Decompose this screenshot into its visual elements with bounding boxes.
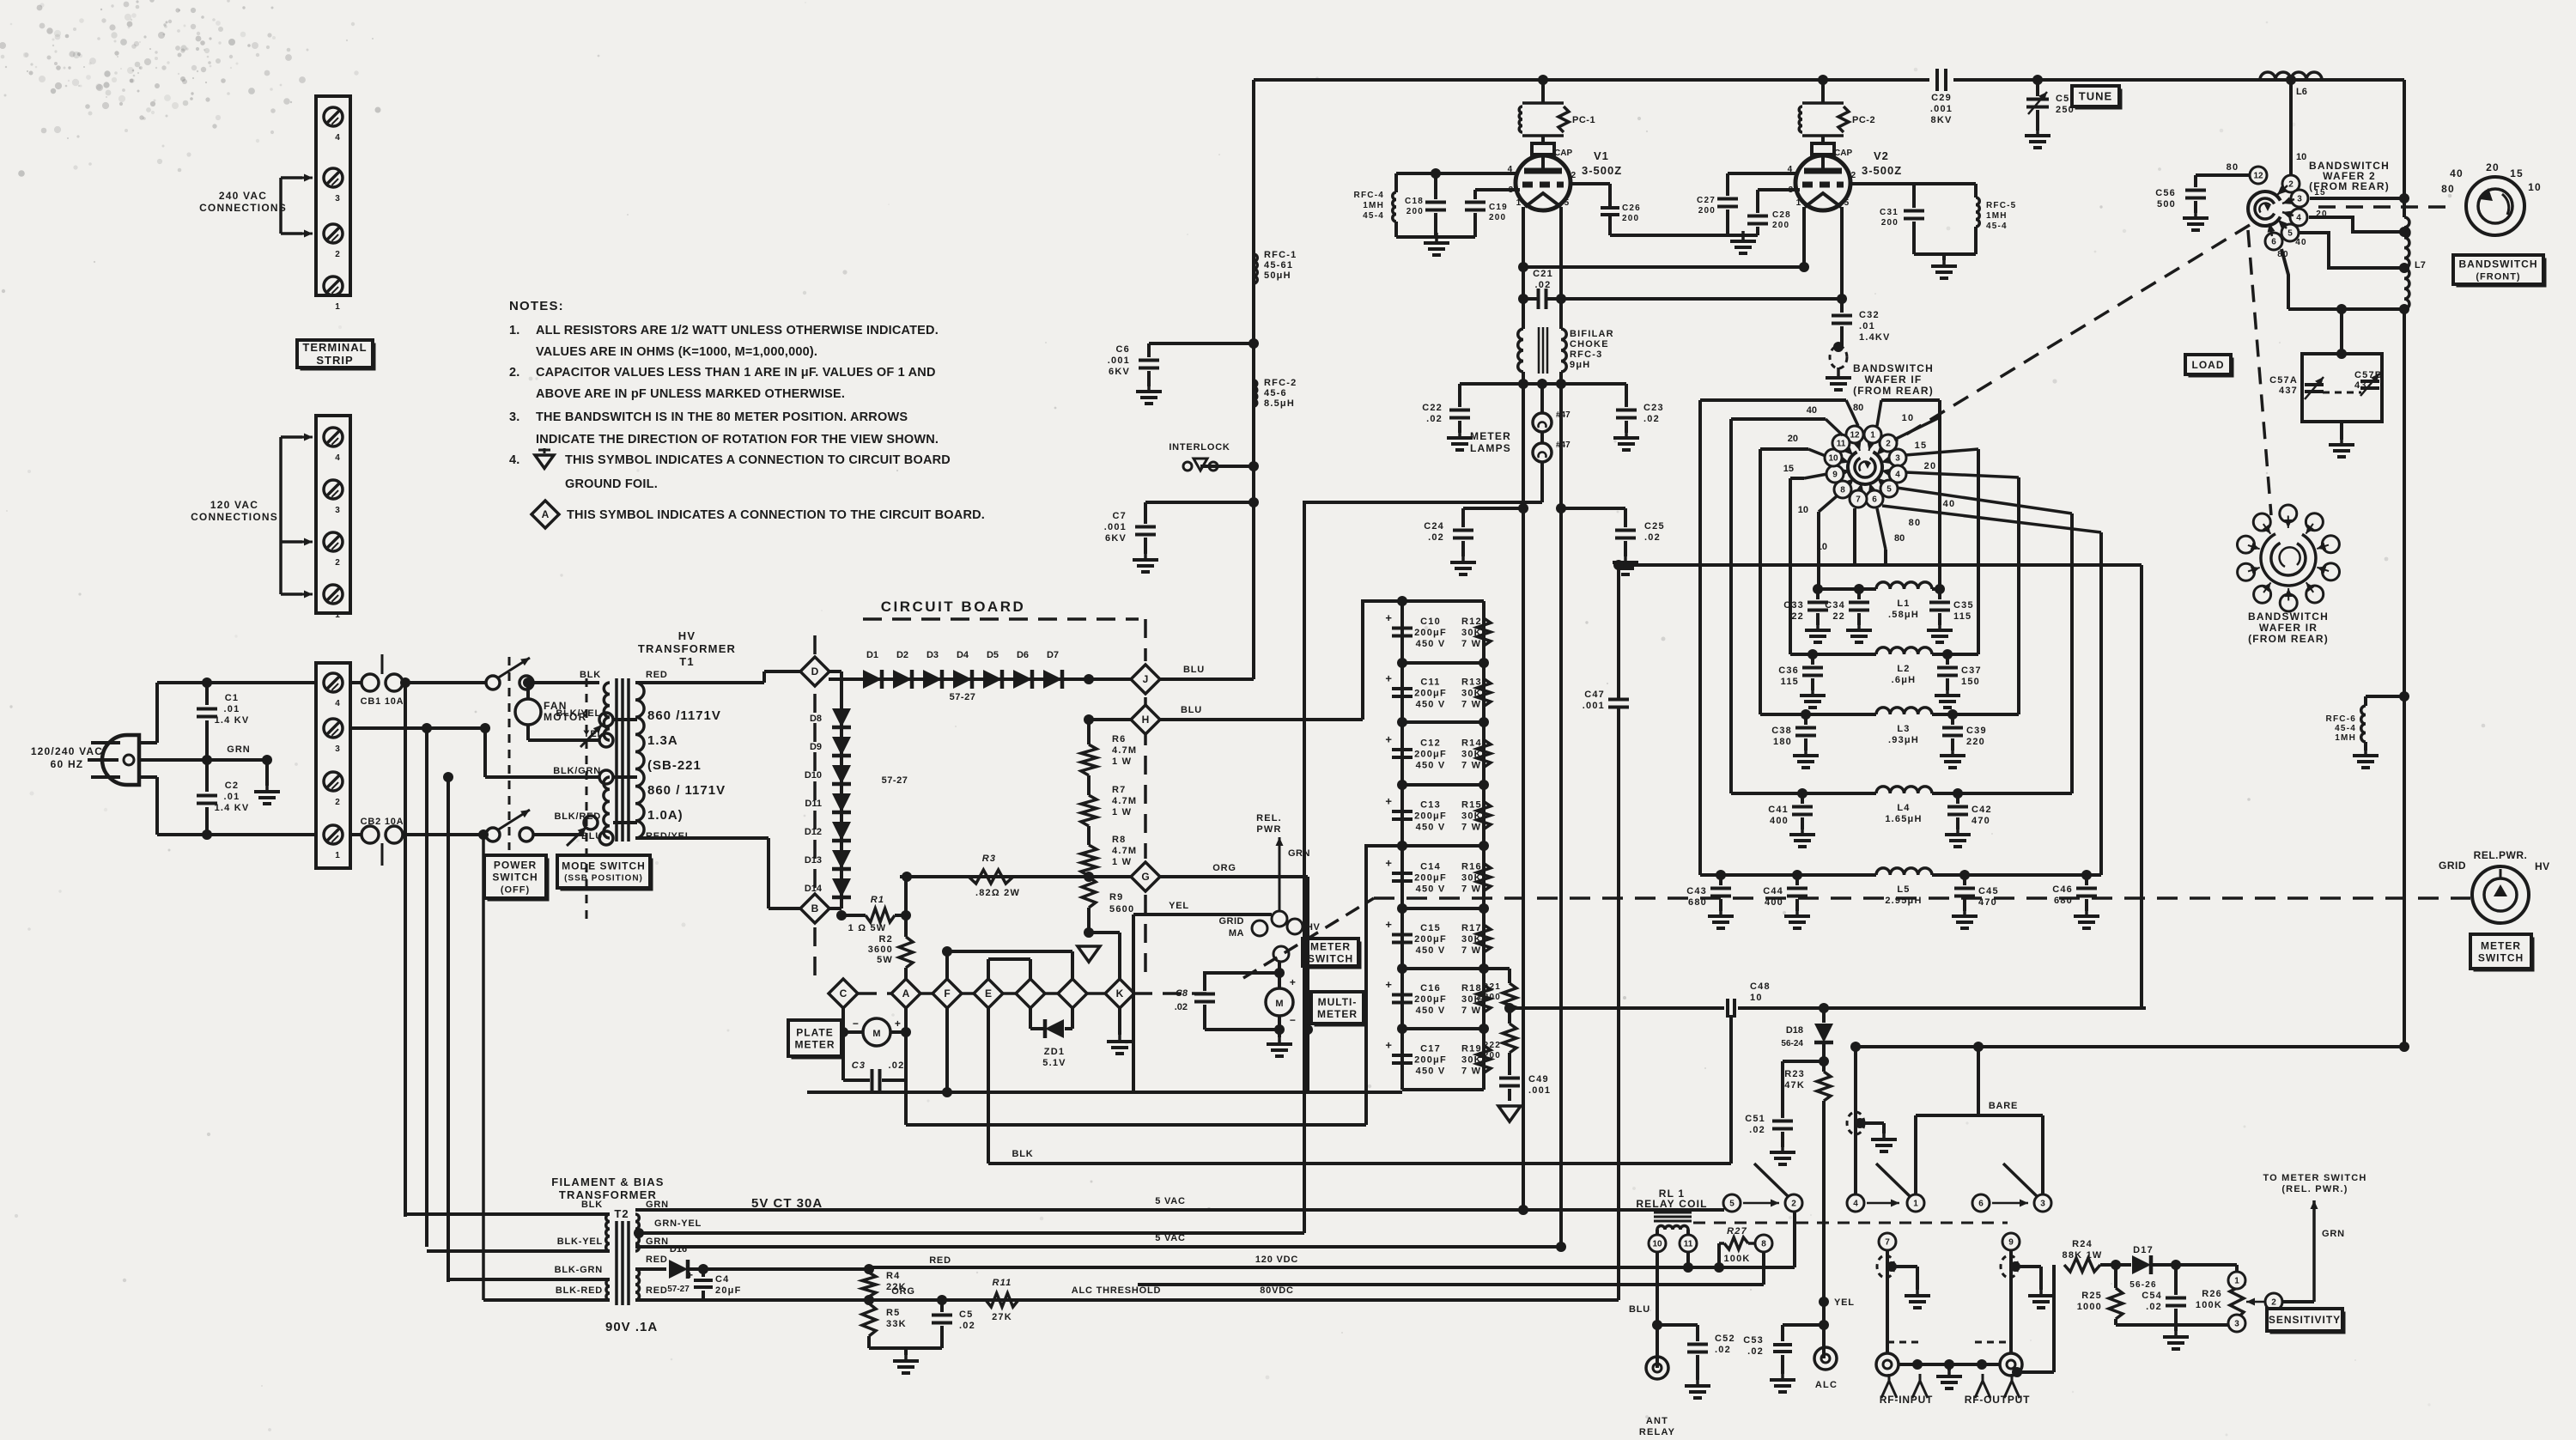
svg-text:80: 80 bbox=[1853, 403, 1863, 413]
svg-text:C29: C29 bbox=[1931, 93, 1952, 103]
svg-text:D11: D11 bbox=[805, 799, 822, 809]
svg-text:7: 7 bbox=[1885, 1238, 1890, 1248]
svg-text:450 V: 450 V bbox=[1416, 823, 1446, 833]
svg-text:R9: R9 bbox=[1109, 892, 1123, 902]
svg-text:BLK/RED: BLK/RED bbox=[555, 811, 602, 822]
svg-text:22K: 22K bbox=[886, 1282, 907, 1292]
svg-text:METER: METER bbox=[1317, 1008, 1358, 1020]
svg-text:R14: R14 bbox=[1461, 738, 1482, 749]
svg-text:.02: .02 bbox=[1644, 532, 1661, 543]
svg-text:C16: C16 bbox=[1420, 983, 1441, 993]
svg-text:C52: C52 bbox=[1715, 1334, 1735, 1344]
svg-text:200: 200 bbox=[1881, 218, 1899, 228]
svg-text:L7: L7 bbox=[2415, 260, 2426, 270]
svg-text:C17: C17 bbox=[1420, 1044, 1441, 1054]
svg-text:.001: .001 bbox=[1583, 701, 1605, 711]
svg-text:.82Ω 2W: .82Ω 2W bbox=[975, 888, 1020, 898]
svg-text:1MH: 1MH bbox=[2335, 733, 2356, 743]
svg-text:LAMPS: LAMPS bbox=[1470, 442, 1511, 454]
svg-text:1.4 KV: 1.4 KV bbox=[215, 715, 250, 726]
svg-text:470: 470 bbox=[1978, 897, 1997, 908]
svg-text:3.: 3. bbox=[509, 410, 520, 424]
svg-text:R1: R1 bbox=[871, 895, 884, 905]
svg-text:80VDC: 80VDC bbox=[1260, 1285, 1293, 1296]
svg-text:200μF: 200μF bbox=[1414, 873, 1447, 884]
svg-text:1: 1 bbox=[2234, 1277, 2239, 1286]
svg-text:C46: C46 bbox=[2052, 884, 2073, 895]
svg-text:7 W: 7 W bbox=[1461, 700, 1481, 710]
svg-text:R5: R5 bbox=[886, 1308, 900, 1318]
svg-text:INTERLOCK: INTERLOCK bbox=[1169, 442, 1230, 453]
svg-text:4: 4 bbox=[2296, 214, 2301, 223]
svg-text:G: G bbox=[1141, 871, 1149, 883]
svg-text:1: 1 bbox=[335, 851, 340, 860]
svg-text:20: 20 bbox=[1788, 434, 1798, 444]
svg-text:1.3A: 1.3A bbox=[647, 733, 678, 748]
svg-text:(FROM REAR): (FROM REAR) bbox=[1853, 385, 1934, 397]
svg-text:V2: V2 bbox=[1874, 149, 1889, 162]
svg-text:45-4: 45-4 bbox=[1986, 222, 2008, 231]
svg-text:5: 5 bbox=[1844, 198, 1850, 208]
svg-text:YEL: YEL bbox=[1169, 901, 1189, 911]
svg-text:BLU: BLU bbox=[1629, 1304, 1650, 1315]
svg-text:CAPACITOR VALUES LESS THAN 1 A: CAPACITOR VALUES LESS THAN 1 ARE IN μF. … bbox=[536, 366, 936, 380]
svg-text:R11: R11 bbox=[993, 1278, 1012, 1288]
svg-text:ZD1: ZD1 bbox=[1044, 1047, 1065, 1057]
svg-text:C27: C27 bbox=[1697, 196, 1716, 205]
svg-text:100K: 100K bbox=[2196, 1300, 2222, 1310]
svg-text:C23: C23 bbox=[1643, 403, 1664, 413]
svg-text:C48: C48 bbox=[1750, 981, 1771, 992]
svg-text:C15: C15 bbox=[1420, 923, 1441, 933]
svg-text:D5: D5 bbox=[987, 650, 999, 660]
svg-text:4: 4 bbox=[1853, 1200, 1858, 1209]
svg-text:680: 680 bbox=[2054, 896, 2073, 906]
svg-text:7 W: 7 W bbox=[1461, 761, 1481, 771]
svg-text:R26: R26 bbox=[2202, 1289, 2222, 1299]
svg-text:180: 180 bbox=[1773, 737, 1792, 747]
svg-text:−: − bbox=[853, 1018, 860, 1030]
svg-text:D12: D12 bbox=[805, 827, 822, 837]
svg-text:9: 9 bbox=[1832, 471, 1838, 480]
svg-text:+: + bbox=[895, 1018, 902, 1030]
svg-text:RED: RED bbox=[646, 670, 668, 680]
svg-text:RELAY COIL: RELAY COIL bbox=[1636, 1198, 1707, 1210]
svg-text:200: 200 bbox=[1489, 213, 1506, 222]
svg-text:(OFF): (OFF) bbox=[501, 884, 530, 895]
svg-text:40: 40 bbox=[1807, 405, 1817, 416]
svg-text:TUNE: TUNE bbox=[2079, 90, 2112, 103]
svg-text:V1: V1 bbox=[1594, 149, 1609, 162]
svg-text:33K: 33K bbox=[886, 1319, 907, 1329]
svg-text:TERMINAL: TERMINAL bbox=[302, 341, 367, 354]
svg-text:VALUES ARE IN OHMS (K=1000, M=: VALUES ARE IN OHMS (K=1000, M=1,000,000)… bbox=[536, 345, 817, 359]
svg-text:C18: C18 bbox=[1405, 197, 1424, 206]
svg-text:SWITCH: SWITCH bbox=[2478, 951, 2524, 963]
svg-text:.6μH: .6μH bbox=[1892, 675, 1917, 685]
svg-text:10: 10 bbox=[1652, 1240, 1662, 1249]
svg-text:27K: 27K bbox=[992, 1312, 1012, 1322]
svg-text:CB1 10A: CB1 10A bbox=[361, 696, 404, 707]
svg-text:.02: .02 bbox=[1747, 1346, 1764, 1357]
svg-text:BANDSWITCH: BANDSWITCH bbox=[1853, 362, 1934, 374]
svg-text:E: E bbox=[985, 987, 992, 999]
svg-text:80: 80 bbox=[2227, 162, 2239, 173]
svg-text:2: 2 bbox=[335, 558, 340, 568]
svg-text:.001: .001 bbox=[1104, 522, 1127, 532]
svg-text:15: 15 bbox=[1783, 464, 1794, 474]
svg-text:11: 11 bbox=[1837, 440, 1846, 449]
svg-text:D: D bbox=[811, 665, 819, 677]
svg-text:METER: METER bbox=[1310, 940, 1351, 952]
svg-text:J: J bbox=[1143, 673, 1149, 685]
svg-text:L5: L5 bbox=[1897, 884, 1910, 895]
svg-text:450 V: 450 V bbox=[1416, 1006, 1446, 1016]
svg-text:FILAMENT & BIAS: FILAMENT & BIAS bbox=[551, 1176, 664, 1188]
svg-text:TRANSFORMER: TRANSFORMER bbox=[638, 642, 736, 655]
svg-text:C31: C31 bbox=[1880, 208, 1899, 217]
svg-text:C13: C13 bbox=[1420, 800, 1441, 811]
svg-text:3: 3 bbox=[335, 506, 340, 515]
svg-text:.02: .02 bbox=[1643, 414, 1660, 424]
svg-text:22: 22 bbox=[1832, 611, 1845, 622]
svg-text:WAFER IR: WAFER IR bbox=[2259, 622, 2318, 634]
svg-text:40: 40 bbox=[1943, 499, 1956, 509]
svg-text:1: 1 bbox=[1870, 431, 1875, 441]
svg-text:1MH: 1MH bbox=[1363, 201, 1384, 210]
svg-text:T2: T2 bbox=[614, 1207, 629, 1220]
svg-text:100K: 100K bbox=[1723, 1254, 1750, 1264]
svg-text:437: 437 bbox=[2354, 380, 2373, 391]
svg-text:2: 2 bbox=[2271, 1298, 2276, 1308]
svg-text:F: F bbox=[944, 987, 950, 999]
svg-text:5: 5 bbox=[1729, 1200, 1735, 1209]
svg-text:C4: C4 bbox=[715, 1274, 729, 1285]
svg-text:7 W: 7 W bbox=[1461, 884, 1481, 895]
svg-text:90V .1A: 90V .1A bbox=[605, 1320, 658, 1334]
svg-text:C32: C32 bbox=[1859, 310, 1880, 320]
svg-text:+: + bbox=[687, 1269, 693, 1281]
svg-text:C38: C38 bbox=[1771, 726, 1792, 736]
svg-text:.93μH: .93μH bbox=[1888, 735, 1919, 745]
svg-text:3: 3 bbox=[335, 194, 340, 204]
svg-text:3-500Z: 3-500Z bbox=[1862, 164, 1902, 177]
svg-text:.02: .02 bbox=[959, 1321, 975, 1331]
svg-text:H: H bbox=[1142, 714, 1150, 726]
svg-text:C22: C22 bbox=[1422, 403, 1443, 413]
svg-text:GROUND FOIL.: GROUND FOIL. bbox=[565, 477, 658, 491]
svg-text:SENSITIVITY: SENSITIVITY bbox=[2269, 1314, 2341, 1326]
svg-text:REL.PWR.: REL.PWR. bbox=[2474, 849, 2528, 861]
svg-text:.001: .001 bbox=[1528, 1085, 1551, 1096]
svg-text:10: 10 bbox=[1902, 413, 1915, 423]
svg-text:1MH: 1MH bbox=[1986, 211, 2008, 221]
svg-text:4.7M: 4.7M bbox=[1112, 796, 1137, 806]
svg-text:#47: #47 bbox=[1556, 410, 1571, 420]
svg-text:GRN: GRN bbox=[227, 744, 250, 755]
svg-text:.01: .01 bbox=[224, 792, 240, 802]
svg-text:7 W: 7 W bbox=[1461, 945, 1481, 956]
svg-text:2.: 2. bbox=[509, 366, 520, 380]
svg-text:MULTI-: MULTI- bbox=[1318, 996, 1358, 1008]
svg-text:PC-2: PC-2 bbox=[1852, 115, 1875, 125]
svg-text:D2: D2 bbox=[896, 650, 908, 660]
svg-text:BANDSWITCH: BANDSWITCH bbox=[2459, 258, 2538, 270]
svg-text:+: + bbox=[1385, 1039, 1392, 1052]
svg-text:CAP: CAP bbox=[1834, 149, 1852, 158]
svg-text:D10: D10 bbox=[805, 770, 822, 781]
svg-text:240 VAC: 240 VAC bbox=[219, 190, 267, 202]
svg-text:C54: C54 bbox=[2142, 1291, 2162, 1301]
svg-text:.02: .02 bbox=[1535, 280, 1552, 290]
svg-text:20: 20 bbox=[2486, 161, 2500, 173]
svg-text:11: 11 bbox=[1684, 1240, 1693, 1249]
svg-text:+: + bbox=[1385, 672, 1392, 685]
svg-text:1000: 1000 bbox=[2077, 1302, 2102, 1312]
svg-text:200μF: 200μF bbox=[1414, 1055, 1447, 1066]
svg-text:2: 2 bbox=[335, 798, 340, 807]
svg-text:450 V: 450 V bbox=[1416, 700, 1446, 710]
svg-text:RF-OUTPUT: RF-OUTPUT bbox=[1965, 1394, 2031, 1406]
svg-text:BARE: BARE bbox=[1989, 1101, 2018, 1111]
svg-text:RED: RED bbox=[646, 1255, 668, 1265]
svg-text:2: 2 bbox=[1571, 171, 1577, 180]
svg-text:10: 10 bbox=[1750, 993, 1763, 1003]
svg-text:3: 3 bbox=[2040, 1200, 2045, 1209]
svg-text:450 V: 450 V bbox=[1416, 884, 1446, 895]
svg-text:BLU: BLU bbox=[581, 831, 603, 842]
svg-text:10: 10 bbox=[1828, 454, 1838, 464]
svg-text:1.4KV: 1.4KV bbox=[1859, 332, 1891, 343]
svg-text:BIFILAR: BIFILAR bbox=[1570, 329, 1614, 339]
svg-text:THIS SYMBOL INDICATES A CONNEC: THIS SYMBOL INDICATES A CONNECTION TO CI… bbox=[565, 453, 951, 467]
svg-text:4: 4 bbox=[1895, 471, 1900, 480]
svg-text:45-61: 45-61 bbox=[1264, 260, 1293, 270]
svg-text:22: 22 bbox=[1791, 611, 1804, 622]
svg-text:7: 7 bbox=[1856, 495, 1861, 505]
svg-text:C19: C19 bbox=[1489, 203, 1508, 212]
svg-text:150: 150 bbox=[1961, 677, 1980, 687]
svg-text:30K: 30K bbox=[1461, 750, 1482, 760]
svg-text:.001: .001 bbox=[1930, 104, 1953, 114]
svg-text:C45: C45 bbox=[1978, 886, 1999, 896]
svg-text:C57B: C57B bbox=[2354, 370, 2383, 380]
svg-text:.001: .001 bbox=[1108, 355, 1130, 366]
svg-text:PC-1: PC-1 bbox=[1572, 115, 1595, 125]
svg-text:1 W: 1 W bbox=[1112, 857, 1132, 867]
svg-text:D1: D1 bbox=[866, 650, 878, 660]
svg-text:3: 3 bbox=[2234, 1320, 2239, 1329]
svg-text:1.65μH: 1.65μH bbox=[1885, 814, 1922, 824]
svg-text:L2: L2 bbox=[1897, 664, 1910, 674]
svg-text:680: 680 bbox=[1688, 897, 1707, 908]
svg-text:3: 3 bbox=[1895, 454, 1900, 464]
svg-text:RED: RED bbox=[929, 1255, 951, 1266]
svg-text:5600: 5600 bbox=[1109, 904, 1134, 914]
svg-text:TRANSFORMER: TRANSFORMER bbox=[559, 1188, 657, 1201]
svg-text:50μH: 50μH bbox=[1264, 270, 1291, 281]
svg-text:C44: C44 bbox=[1763, 886, 1783, 896]
svg-text:CIRCUIT BOARD: CIRCUIT BOARD bbox=[881, 598, 1026, 615]
svg-text:30K: 30K bbox=[1461, 934, 1482, 945]
svg-text:REL.: REL. bbox=[1256, 813, 1282, 823]
svg-text:WAFER IF: WAFER IF bbox=[1865, 374, 1923, 386]
svg-text:C57A: C57A bbox=[2269, 375, 2298, 386]
svg-text:INDICATE THE DIRECTION OF ROTA: INDICATE THE DIRECTION OF ROTATION FOR T… bbox=[536, 433, 939, 447]
svg-text:C34: C34 bbox=[1825, 600, 1845, 611]
svg-text:L6: L6 bbox=[2296, 87, 2307, 97]
svg-text:C39: C39 bbox=[1966, 726, 1987, 736]
svg-text:R15: R15 bbox=[1461, 800, 1482, 811]
svg-text:C43: C43 bbox=[1686, 886, 1707, 896]
svg-text:45-6: 45-6 bbox=[1264, 388, 1287, 398]
svg-text:(REL. PWR.): (REL. PWR.) bbox=[2281, 1184, 2348, 1194]
svg-text:R27: R27 bbox=[1727, 1226, 1747, 1236]
svg-text:R6: R6 bbox=[1112, 734, 1126, 744]
svg-text:120 VAC: 120 VAC bbox=[210, 499, 258, 511]
svg-text:3: 3 bbox=[2297, 195, 2302, 204]
svg-text:C6: C6 bbox=[1116, 344, 1130, 355]
svg-text:4: 4 bbox=[335, 699, 340, 708]
svg-text:7 W: 7 W bbox=[1461, 1066, 1481, 1077]
svg-text:RELAY: RELAY bbox=[1639, 1427, 1675, 1437]
svg-text:LOAD: LOAD bbox=[2192, 359, 2225, 371]
svg-text:C1: C1 bbox=[225, 693, 239, 703]
svg-text:9μH: 9μH bbox=[1570, 360, 1590, 370]
svg-text:57-27: 57-27 bbox=[667, 1285, 690, 1294]
svg-text:5: 5 bbox=[1886, 485, 1892, 495]
svg-text:C12: C12 bbox=[1420, 738, 1441, 749]
svg-text:450 V: 450 V bbox=[1416, 1066, 1446, 1077]
svg-text:D17: D17 bbox=[2133, 1245, 2154, 1255]
svg-text:CONNECTIONS: CONNECTIONS bbox=[191, 511, 278, 523]
svg-text:C10: C10 bbox=[1420, 617, 1441, 627]
svg-text:R12: R12 bbox=[1461, 617, 1482, 627]
svg-text:PLATE: PLATE bbox=[796, 1026, 833, 1038]
svg-text:1 Ω 5W: 1 Ω 5W bbox=[848, 923, 887, 933]
svg-text:.58μH: .58μH bbox=[1888, 610, 1919, 620]
svg-text:4.7M: 4.7M bbox=[1112, 846, 1137, 856]
svg-text:15: 15 bbox=[2510, 167, 2524, 179]
svg-text:BLU: BLU bbox=[1181, 705, 1202, 715]
svg-text:45-4: 45-4 bbox=[2335, 724, 2356, 733]
svg-text:400: 400 bbox=[1765, 897, 1783, 908]
svg-text:BLK-RED: BLK-RED bbox=[556, 1285, 603, 1296]
svg-text:40: 40 bbox=[2450, 167, 2464, 179]
svg-text:ALC: ALC bbox=[1815, 1380, 1838, 1390]
svg-text:BANDSWITCH: BANDSWITCH bbox=[2248, 611, 2329, 623]
svg-text:C3: C3 bbox=[852, 1060, 866, 1071]
svg-text:D8: D8 bbox=[810, 714, 822, 724]
svg-text:ALC THRESHOLD: ALC THRESHOLD bbox=[1072, 1285, 1162, 1296]
svg-text:BLK-YEL: BLK-YEL bbox=[557, 1236, 603, 1247]
svg-text:57-27: 57-27 bbox=[950, 692, 976, 702]
svg-text:C49: C49 bbox=[1528, 1074, 1549, 1085]
svg-text:+: + bbox=[1385, 611, 1392, 624]
svg-text:7 W: 7 W bbox=[1461, 823, 1481, 833]
svg-text:(SB-221: (SB-221 bbox=[647, 758, 702, 773]
svg-text:D18: D18 bbox=[1786, 1025, 1803, 1036]
svg-text:D7: D7 bbox=[1047, 650, 1059, 660]
svg-text:ORG: ORG bbox=[1212, 863, 1236, 873]
svg-text:.01: .01 bbox=[224, 704, 240, 714]
svg-text:C2: C2 bbox=[225, 781, 239, 791]
svg-text:20: 20 bbox=[1924, 461, 1937, 471]
svg-text:.02: .02 bbox=[889, 1060, 905, 1071]
svg-text:POWER: POWER bbox=[494, 859, 537, 871]
svg-text:200μF: 200μF bbox=[1414, 934, 1447, 945]
svg-text:C5: C5 bbox=[959, 1309, 973, 1320]
svg-text:RFC-4: RFC-4 bbox=[1354, 191, 1384, 200]
svg-text:RFC-1: RFC-1 bbox=[1264, 250, 1297, 260]
svg-text:2200: 2200 bbox=[1478, 1051, 1501, 1060]
svg-text:30K: 30K bbox=[1461, 689, 1482, 699]
svg-text:7 W: 7 W bbox=[1461, 1006, 1481, 1016]
svg-text:GRID: GRID bbox=[2439, 860, 2466, 872]
svg-text:.02: .02 bbox=[1428, 532, 1444, 543]
svg-text:400: 400 bbox=[1770, 816, 1789, 826]
svg-text:RFC-5: RFC-5 bbox=[1986, 201, 2016, 210]
svg-text:200μF: 200μF bbox=[1414, 750, 1447, 760]
svg-text:C41: C41 bbox=[1768, 805, 1789, 815]
svg-text:1 W: 1 W bbox=[1112, 807, 1132, 817]
svg-text:K: K bbox=[1116, 987, 1124, 999]
svg-text:C7: C7 bbox=[1113, 511, 1127, 521]
svg-text:C51: C51 bbox=[1745, 1114, 1765, 1124]
svg-text:D6: D6 bbox=[1017, 650, 1029, 660]
svg-text:C33: C33 bbox=[1783, 600, 1804, 611]
svg-text:MODE SWITCH: MODE SWITCH bbox=[562, 860, 646, 872]
svg-text:B: B bbox=[811, 902, 819, 914]
svg-text:BLK/GRN: BLK/GRN bbox=[553, 766, 601, 776]
svg-text:30K: 30K bbox=[1461, 811, 1482, 822]
svg-text:1 W: 1 W bbox=[1112, 756, 1132, 767]
svg-text:7 W: 7 W bbox=[1461, 639, 1481, 649]
svg-text:40: 40 bbox=[2295, 238, 2307, 247]
svg-text:CAP: CAP bbox=[1554, 149, 1572, 158]
svg-text:THE BANDSWITCH IS IN THE 80 ME: THE BANDSWITCH IS IN THE 80 METER POSITI… bbox=[536, 410, 908, 424]
svg-text:47K: 47K bbox=[1784, 1080, 1805, 1091]
svg-text:9: 9 bbox=[2008, 1238, 2014, 1248]
svg-text:C8: C8 bbox=[1176, 988, 1188, 999]
svg-text:5: 5 bbox=[1564, 198, 1571, 208]
svg-text:6KV: 6KV bbox=[1109, 367, 1130, 377]
svg-text:3: 3 bbox=[335, 744, 340, 754]
svg-text:R24: R24 bbox=[2072, 1239, 2093, 1249]
svg-text:M: M bbox=[872, 1029, 880, 1039]
svg-text:ALL RESISTORS ARE 1/2 WATT UNL: ALL RESISTORS ARE 1/2 WATT UNLESS OTHERW… bbox=[536, 324, 939, 337]
svg-text:10: 10 bbox=[1798, 505, 1808, 515]
svg-text:CONNECTIONS: CONNECTIONS bbox=[199, 202, 287, 214]
svg-text:T1: T1 bbox=[679, 655, 695, 668]
svg-text:C21: C21 bbox=[1533, 269, 1553, 279]
svg-text:4.: 4. bbox=[509, 453, 520, 467]
svg-text:METER: METER bbox=[795, 1038, 835, 1050]
svg-text:R13: R13 bbox=[1461, 677, 1482, 688]
svg-text:6: 6 bbox=[2271, 238, 2276, 247]
svg-text:30K: 30K bbox=[1461, 873, 1482, 884]
svg-text:A: A bbox=[542, 508, 550, 520]
svg-text:R8: R8 bbox=[1112, 835, 1126, 845]
svg-text:860 / 1171V: 860 / 1171V bbox=[647, 783, 726, 798]
svg-text:BLK: BLK bbox=[581, 1200, 603, 1210]
svg-text:HV: HV bbox=[678, 629, 696, 642]
svg-text:R16: R16 bbox=[1461, 862, 1482, 872]
svg-text:6: 6 bbox=[1872, 495, 1877, 505]
svg-text:C47: C47 bbox=[1584, 690, 1605, 700]
svg-text:1.: 1. bbox=[509, 324, 520, 337]
svg-text:8: 8 bbox=[1840, 486, 1845, 495]
